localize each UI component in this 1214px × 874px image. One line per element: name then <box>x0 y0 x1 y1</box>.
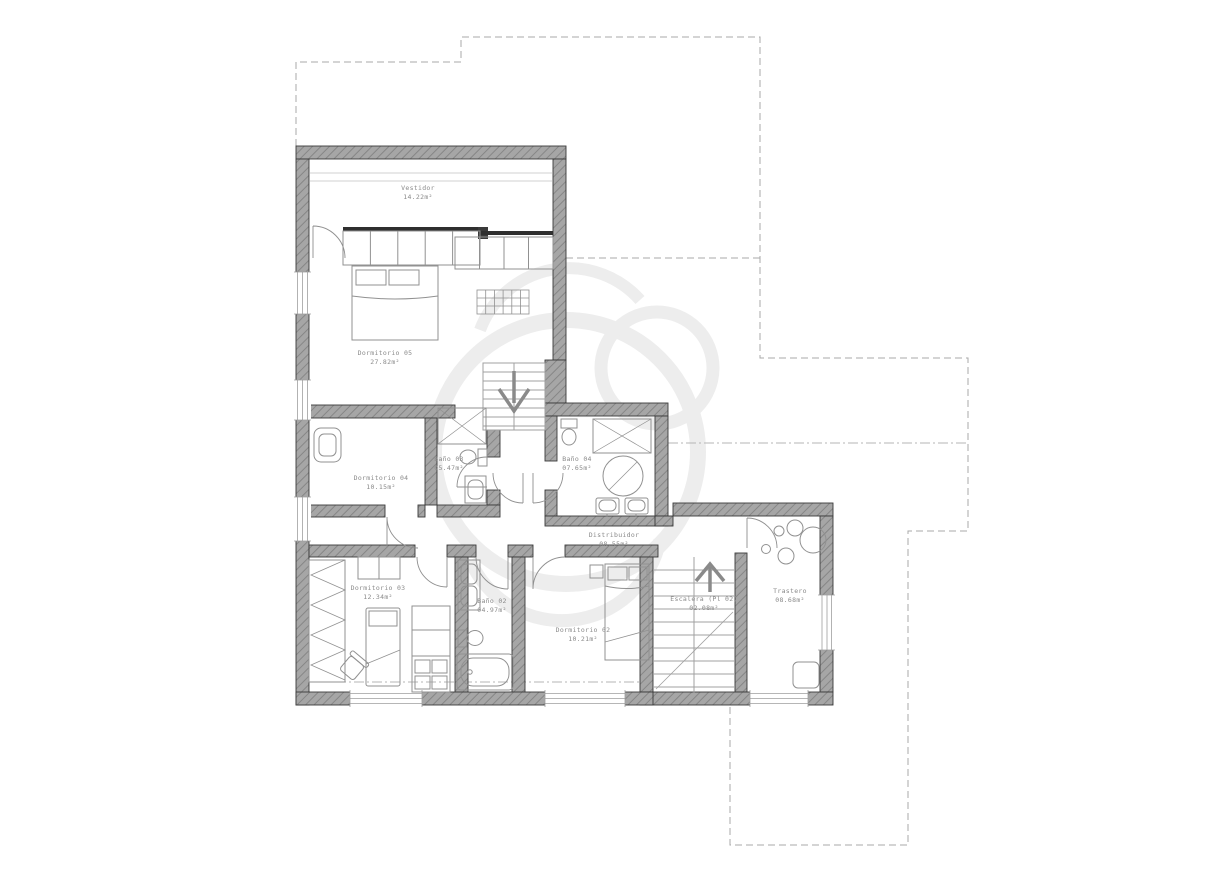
room-label-dormitorio-05: Dormitorio 05 27.82m² <box>358 349 413 366</box>
closet-vestidor <box>343 227 553 269</box>
dormitorio-03-furniture <box>309 557 450 692</box>
room-area: 14.22m² <box>401 193 435 202</box>
room-area: 07.65m² <box>562 464 592 473</box>
room-area: 10.15m² <box>354 483 409 492</box>
window-bottom-3 <box>750 690 808 707</box>
ceiling-break-lines <box>310 173 552 181</box>
room-name: Baño 03 <box>434 455 464 464</box>
room-name: Dormitorio 05 <box>358 349 413 358</box>
room-name: Dormitorio 03 <box>351 584 406 593</box>
stair-lower <box>653 557 735 693</box>
room-name: Baño 04 <box>562 455 592 464</box>
room-area: 08.68m² <box>773 596 807 605</box>
stair-upper <box>483 363 545 430</box>
trastero-fixtures <box>762 520 827 688</box>
room-area: 05.47m² <box>434 464 464 473</box>
room-label-escalera: Escalera (Pl 02) 02.08m² <box>670 595 737 612</box>
room-label-dormitorio-02: Dormitorio 02 10.21m² <box>556 626 611 643</box>
room-label-bano-03: Baño 03 05.47m² <box>434 455 464 472</box>
room-area: 12.34m² <box>351 593 406 602</box>
bed-dormitorio-05 <box>352 266 438 340</box>
window-right-1 <box>818 595 835 650</box>
room-label-bano-02: Baño 02 04.97m² <box>477 597 507 614</box>
window-left-2 <box>294 380 311 420</box>
chair-dormitorio-03 <box>338 650 370 682</box>
room-name: Trastero <box>773 587 807 596</box>
room-name: Vestidor <box>401 184 435 193</box>
room-name: Distribuidor <box>589 531 640 540</box>
room-label-dormitorio-04: Dormitorio 04 10.15m² <box>354 474 409 491</box>
room-label-trastero: Trastero 08.68m² <box>773 587 807 604</box>
room-label-vestidor: Vestidor 14.22m² <box>401 184 435 201</box>
room-area: 08.55m² <box>589 540 640 549</box>
room-area: 02.08m² <box>670 604 737 613</box>
room-label-distribuidor: Distribuidor 08.55m² <box>589 531 640 548</box>
room-name: Escalera (Pl 02) <box>670 595 737 604</box>
room-name: Dormitorio 02 <box>556 626 611 635</box>
stair-up-arrow-icon <box>696 564 724 592</box>
floor-plan-page: Vestidor 14.22m² Dormitorio 05 27.82m² D… <box>0 0 1214 874</box>
window-bottom-1 <box>350 690 422 707</box>
room-area: 27.82m² <box>358 358 413 367</box>
armchair-dormitorio-04 <box>314 428 341 462</box>
window-bottom-2 <box>545 690 625 707</box>
room-label-bano-04: Baño 04 07.65m² <box>562 455 592 472</box>
room-area: 10.21m² <box>556 635 611 644</box>
room-area: 04.97m² <box>477 606 507 615</box>
room-label-dormitorio-03: Dormitorio 03 12.34m² <box>351 584 406 601</box>
floor-plan-drawing <box>0 0 1214 874</box>
room-name: Baño 02 <box>477 597 507 606</box>
room-name: Dormitorio 04 <box>354 474 409 483</box>
window-left-3 <box>294 497 311 541</box>
window-left-1 <box>294 272 311 314</box>
